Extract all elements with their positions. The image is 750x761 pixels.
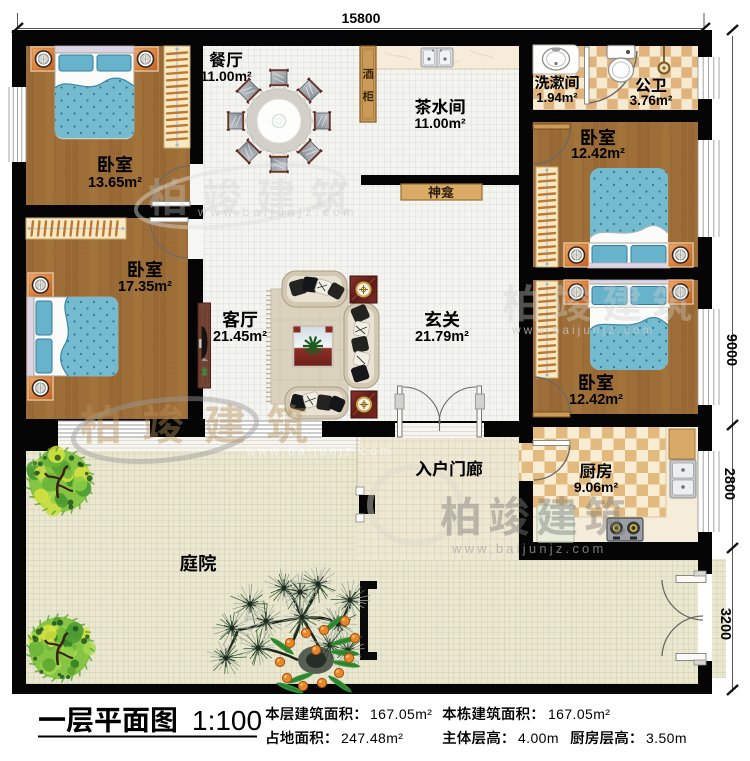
svg-text:167.05m²: 167.05m² [548,706,610,722]
svg-text:247.48m²: 247.48m² [341,730,403,746]
svg-text:www.baijunjz.com: www.baijunjz.com [511,323,655,337]
svg-text:3.50m: 3.50m [646,730,687,746]
svg-text:21.45m²: 21.45m² [213,329,267,345]
svg-text:3.76m²: 3.76m² [630,93,673,108]
svg-text:www.baijunjz.com: www.baijunjz.com [245,444,393,458]
svg-text:3200: 3200 [717,608,733,640]
svg-text:17.35m²: 17.35m² [118,279,172,295]
svg-text:11.00m²: 11.00m² [414,115,466,131]
svg-text:9000: 9000 [723,334,739,366]
svg-text:15800: 15800 [342,10,381,26]
svg-text:12.42m²: 12.42m² [569,392,623,408]
svg-text:21.79m²: 21.79m² [415,329,469,345]
svg-text:167.05m²: 167.05m² [370,706,432,722]
svg-text:11.00m²: 11.00m² [200,68,252,84]
svg-text:www.baijunjz.com: www.baijunjz.com [197,205,357,219]
svg-text:12.42m²: 12.42m² [571,146,625,162]
svg-text:1.94m²: 1.94m² [536,90,578,105]
svg-text:1:100: 1:100 [192,705,262,736]
svg-text:13.65m²: 13.65m² [88,175,142,191]
svg-text:9.06m²: 9.06m² [574,479,619,495]
svg-text:4.00m: 4.00m [518,730,559,746]
svg-text:www.baijunjz.com: www.baijunjz.com [451,541,607,556]
svg-text:2800: 2800 [721,468,737,500]
